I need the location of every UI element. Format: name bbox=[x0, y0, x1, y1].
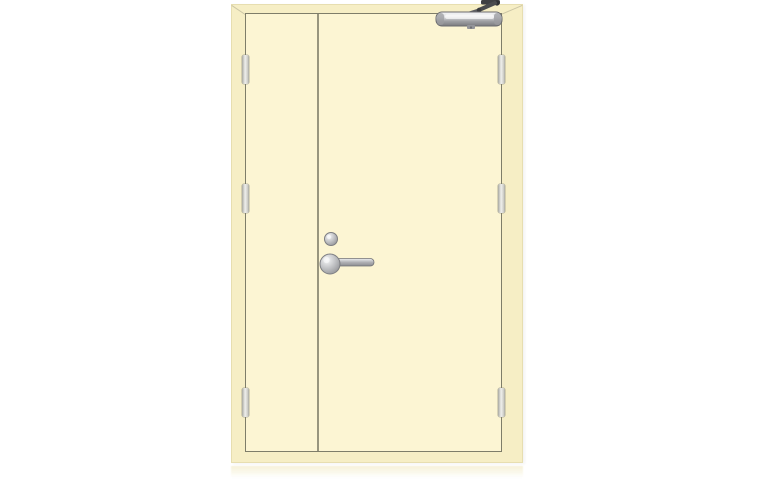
door-closer-icon bbox=[436, 0, 502, 29]
floor-reflection bbox=[231, 466, 523, 478]
door-hardware-layer bbox=[0, 0, 768, 480]
lever-handle-icon bbox=[320, 254, 374, 274]
product-photo bbox=[0, 0, 768, 480]
lock-cylinder-icon bbox=[325, 233, 338, 246]
